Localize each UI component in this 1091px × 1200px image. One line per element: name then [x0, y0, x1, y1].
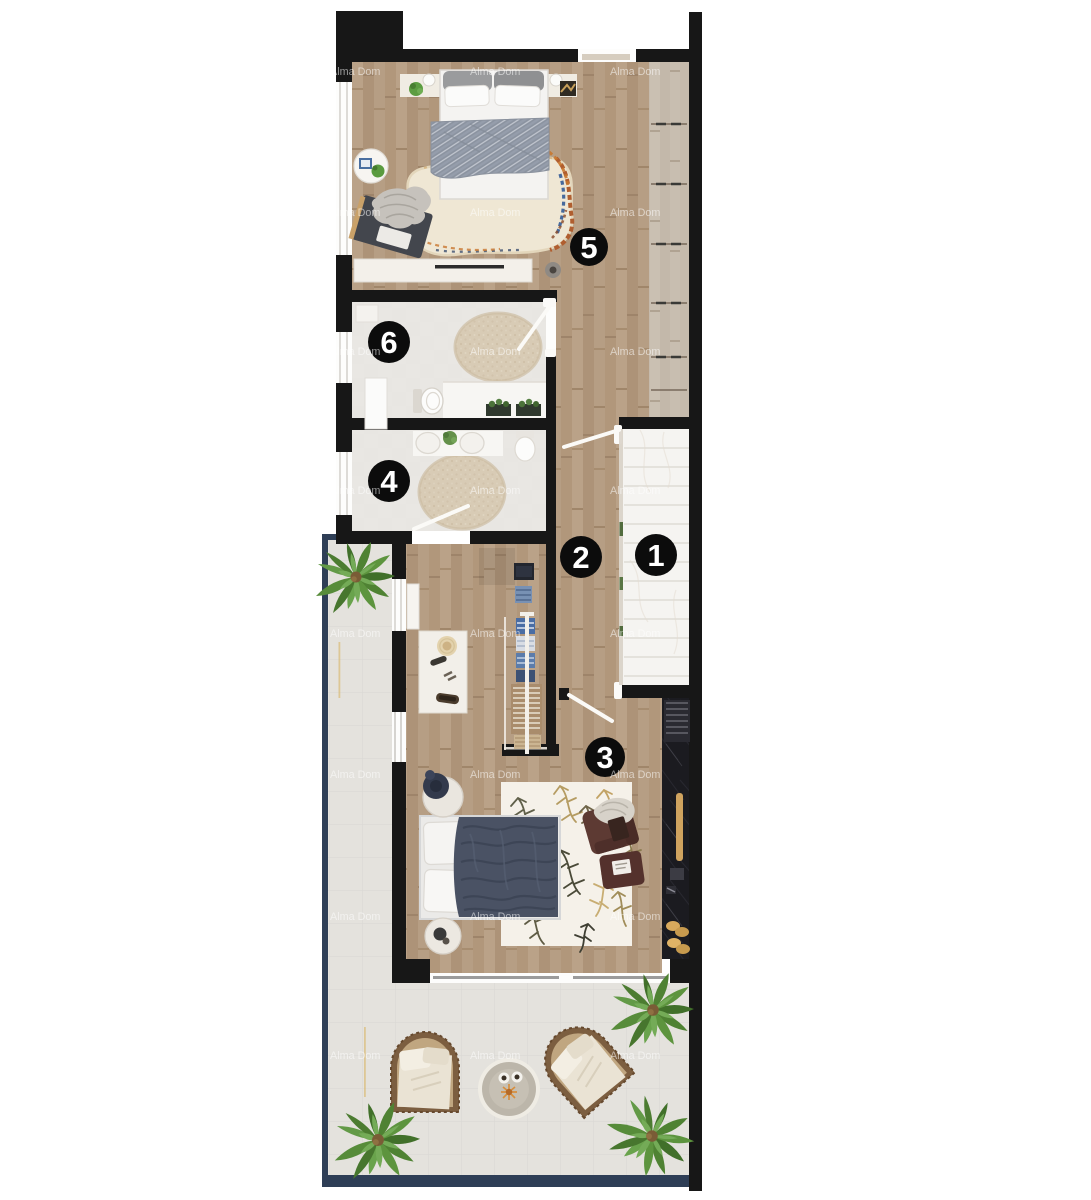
svg-text:Alma Dom: Alma Dom — [610, 485, 660, 497]
svg-text:Alma Dom: Alma Dom — [330, 628, 380, 640]
svg-text:Alma Dom: Alma Dom — [330, 1050, 380, 1062]
svg-text:Alma Dom: Alma Dom — [470, 628, 520, 640]
svg-text:Alma Dom: Alma Dom — [470, 1050, 520, 1062]
svg-text:Alma Dom: Alma Dom — [470, 769, 520, 781]
svg-text:Alma Dom: Alma Dom — [470, 66, 520, 78]
svg-text:Alma Dom: Alma Dom — [330, 485, 380, 497]
svg-text:Alma Dom: Alma Dom — [330, 207, 380, 219]
svg-text:Alma Dom: Alma Dom — [470, 911, 520, 923]
svg-text:Alma Dom: Alma Dom — [610, 346, 660, 358]
svg-text:Alma Dom: Alma Dom — [470, 207, 520, 219]
svg-text:Alma Dom: Alma Dom — [330, 346, 380, 358]
svg-text:Alma Dom: Alma Dom — [470, 346, 520, 358]
svg-text:Alma Dom: Alma Dom — [610, 66, 660, 78]
svg-text:Alma Dom: Alma Dom — [610, 911, 660, 923]
svg-text:1: 1 — [647, 538, 664, 573]
svg-text:Alma Dom: Alma Dom — [610, 628, 660, 640]
svg-text:Alma Dom: Alma Dom — [330, 769, 380, 781]
svg-text:Alma Dom: Alma Dom — [610, 1050, 660, 1062]
svg-text:Alma Dom: Alma Dom — [330, 66, 380, 78]
svg-text:2: 2 — [572, 540, 589, 575]
svg-text:6: 6 — [380, 325, 397, 360]
svg-text:Alma Dom: Alma Dom — [610, 207, 660, 219]
svg-text:5: 5 — [580, 230, 597, 265]
svg-text:4: 4 — [380, 464, 398, 499]
svg-text:Alma Dom: Alma Dom — [330, 911, 380, 923]
svg-text:Alma Dom: Alma Dom — [610, 769, 660, 781]
svg-text:Alma Dom: Alma Dom — [470, 485, 520, 497]
